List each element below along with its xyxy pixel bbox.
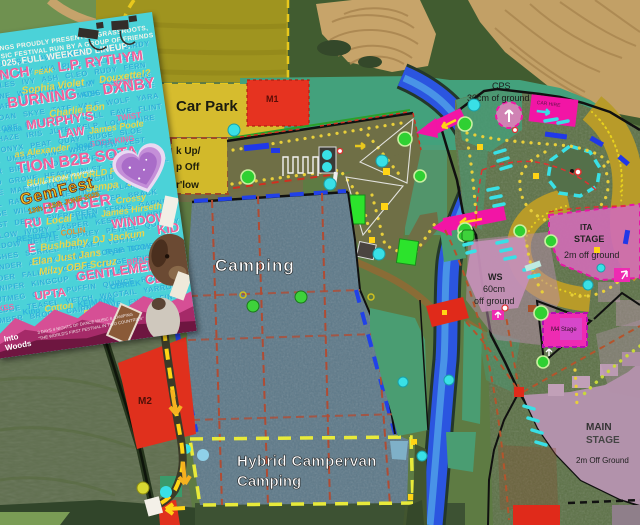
svg-text:WS: WS xyxy=(488,272,503,282)
svg-text:STAGE: STAGE xyxy=(586,435,620,446)
svg-text:M2: M2 xyxy=(138,396,152,407)
svg-text:Car Park: Car Park xyxy=(176,98,238,115)
svg-text:k Up/: k Up/ xyxy=(176,146,201,157)
svg-text:p Off: p Off xyxy=(176,162,200,173)
svg-text:r'low: r'low xyxy=(176,180,199,191)
svg-text:2m Off Ground: 2m Off Ground xyxy=(576,456,629,465)
svg-text:CPS: CPS xyxy=(492,81,511,91)
svg-text:2m off ground: 2m off ground xyxy=(564,250,619,260)
svg-text:Camping: Camping xyxy=(237,473,301,490)
svg-text:M1: M1 xyxy=(266,94,279,104)
svg-text:Hybrid Campervan: Hybrid Campervan xyxy=(237,453,377,470)
svg-text:ITA: ITA xyxy=(580,223,593,232)
svg-text:60cm: 60cm xyxy=(483,284,505,294)
svg-text:off ground: off ground xyxy=(474,296,514,306)
svg-text:Camping: Camping xyxy=(215,256,295,275)
svg-text:M4 Stage: M4 Stage xyxy=(551,327,577,333)
svg-text:STAGE: STAGE xyxy=(574,234,604,244)
svg-text:MAIN: MAIN xyxy=(586,422,612,433)
